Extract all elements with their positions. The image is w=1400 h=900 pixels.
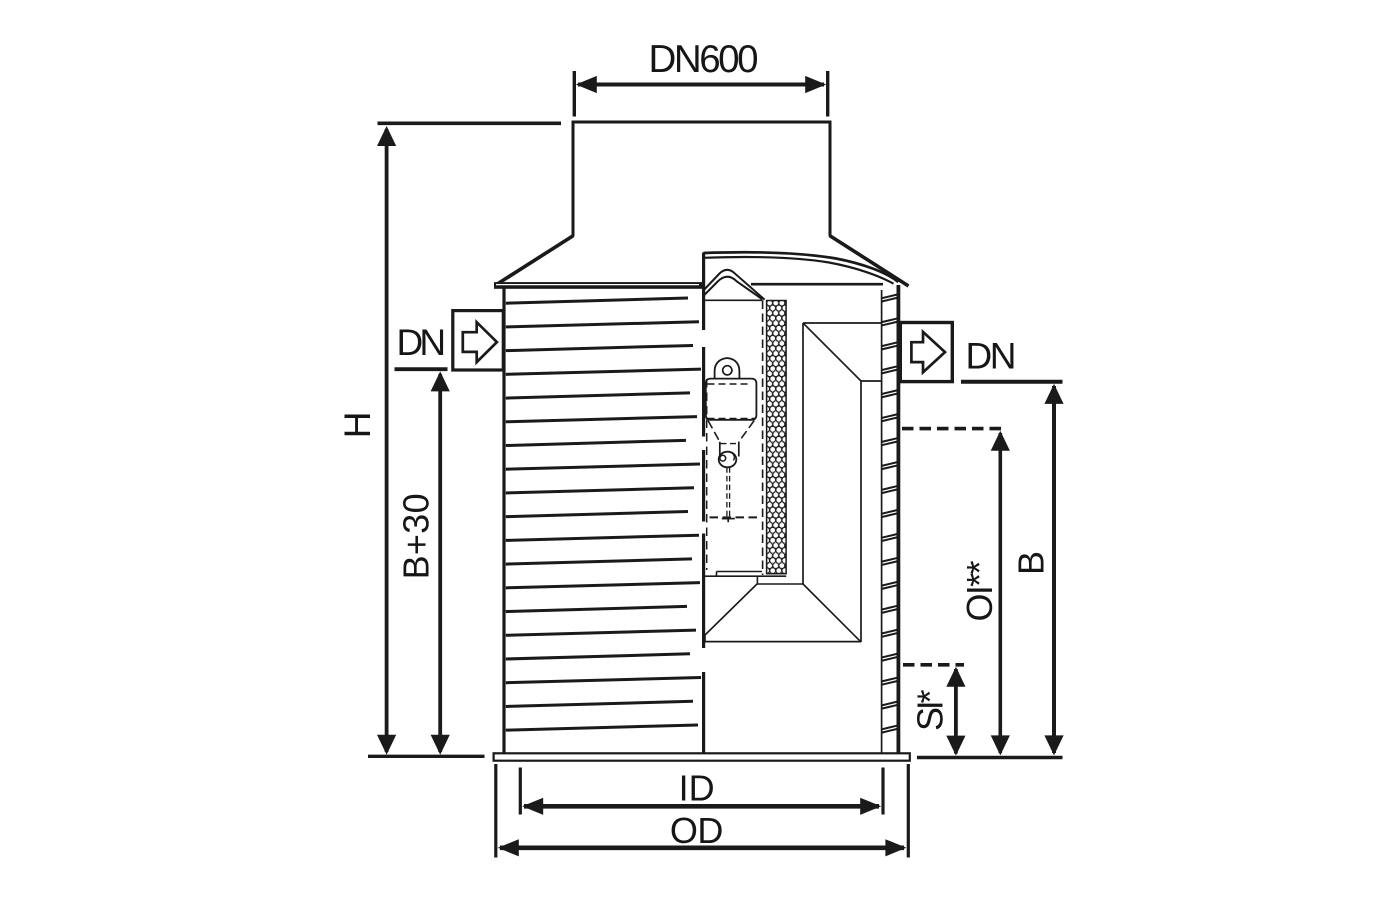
svg-text:ID: ID (679, 767, 715, 808)
svg-text:OD: OD (670, 810, 724, 851)
svg-text:B: B (1011, 551, 1052, 575)
svg-text:OI**: OI** (959, 561, 1000, 622)
svg-text:SI*: SI* (910, 689, 951, 731)
svg-text:H: H (337, 412, 378, 439)
svg-text:DN600: DN600 (649, 38, 759, 81)
svg-text:DN: DN (397, 322, 447, 363)
svg-text:DN: DN (966, 336, 1017, 377)
svg-text:B+30: B+30 (396, 493, 437, 579)
